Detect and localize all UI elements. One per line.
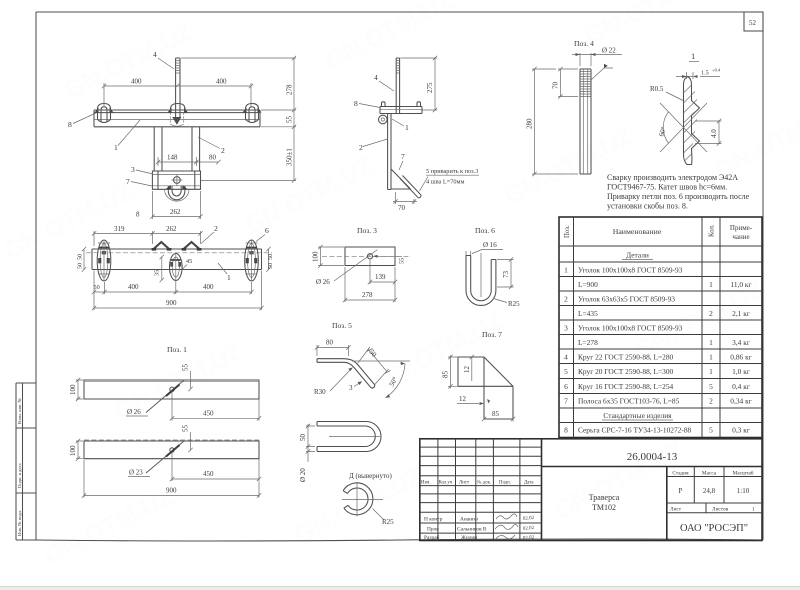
svg-text:5: 5 — [564, 367, 568, 376]
svg-text:Полоса 6х35 ГОСТ103-76, L=85: Полоса 6х35 ГОСТ103-76, L=85 — [578, 397, 680, 406]
svg-text:Уголок 63х63х5 ГОСТ 8509-93: Уголок 63х63х5 ГОСТ 8509-93 — [578, 295, 675, 304]
svg-text:Приме-: Приме- — [730, 224, 753, 232]
svg-text:+0.4: +0.4 — [712, 68, 721, 73]
svg-text:45: 45 — [186, 258, 192, 265]
svg-text:Ø 20: Ø 20 — [299, 468, 307, 482]
svg-text:262: 262 — [170, 208, 181, 216]
svg-text:1: 1 — [405, 123, 409, 132]
svg-text:Подп. и дата: Подп. и дата — [17, 463, 22, 488]
svg-text:Круг 20 ГОСТ 2590-88, L=300: Круг 20 ГОСТ 2590-88, L=300 — [578, 367, 674, 376]
svg-text:450: 450 — [203, 470, 214, 478]
svg-text:2: 2 — [709, 309, 713, 318]
svg-text:6: 6 — [265, 226, 269, 235]
svg-text:Поз. 6: Поз. 6 — [475, 226, 495, 235]
svg-text:Ø 26: Ø 26 — [316, 278, 330, 286]
svg-text:3: 3 — [349, 384, 353, 392]
svg-text:100: 100 — [69, 384, 77, 395]
svg-text:Инв. № подл.: Инв. № подл. — [17, 510, 22, 536]
svg-text:80: 80 — [209, 154, 217, 162]
svg-text:Лист: Лист — [670, 507, 682, 513]
svg-text:0,3 кг: 0,3 кг — [732, 426, 750, 435]
svg-text:12: 12 — [463, 366, 471, 374]
svg-text:50: 50 — [299, 434, 307, 442]
svg-text:3,4 кг: 3,4 кг — [732, 338, 750, 347]
svg-text:Траверса: Траверса — [589, 493, 620, 502]
svg-text:Ø 16: Ø 16 — [483, 241, 497, 249]
svg-text:2,1 кг: 2,1 кг — [732, 309, 750, 318]
svg-text:Подп.: Подп. — [499, 481, 511, 486]
svg-text:Масштаб: Масштаб — [733, 470, 754, 477]
svg-text:Поз. 3: Поз. 3 — [357, 226, 377, 235]
svg-text:55: 55 — [182, 425, 190, 433]
svg-text:02.02: 02.02 — [523, 516, 535, 522]
svg-text:3: 3 — [564, 324, 568, 333]
svg-text:Кол.: Кол. — [709, 224, 716, 237]
svg-text:2: 2 — [359, 143, 363, 152]
svg-text:02.02: 02.02 — [523, 526, 535, 532]
svg-text:GN.OTM.UZ: GN.OTM.UZ — [40, 482, 178, 571]
svg-text:8: 8 — [136, 211, 140, 219]
svg-text:Лист: Лист — [459, 481, 470, 486]
svg-text:4: 4 — [374, 73, 378, 82]
svg-text:1: 1 — [709, 280, 713, 289]
svg-text:0,86 кг: 0,86 кг — [730, 353, 751, 362]
svg-text:Пров: Пров — [427, 527, 439, 533]
svg-text:5: 5 — [709, 426, 713, 435]
svg-text:0,4 кг: 0,4 кг — [732, 382, 750, 391]
svg-text:1:10: 1:10 — [737, 487, 750, 495]
svg-text:8: 8 — [354, 99, 358, 108]
svg-text:1: 1 — [227, 273, 231, 282]
svg-text:4.0: 4.0 — [710, 129, 718, 138]
svg-text:2: 2 — [214, 224, 218, 233]
svg-text:50: 50 — [94, 284, 100, 291]
svg-text:55: 55 — [286, 116, 294, 124]
svg-text:35: 35 — [154, 270, 161, 276]
svg-text:Взам. инв. №: Взам. инв. № — [17, 397, 22, 424]
svg-text:Поз. 4: Поз. 4 — [574, 39, 594, 48]
svg-text:70: 70 — [398, 204, 406, 212]
svg-text:R25: R25 — [382, 518, 394, 526]
svg-text:GN.OTM.UZ: GN.OTM.UZ — [60, 17, 198, 106]
svg-text:Р: Р — [679, 487, 683, 495]
svg-text:400: 400 — [203, 283, 214, 291]
svg-text:26.0004-13: 26.0004-13 — [627, 451, 678, 463]
svg-text:50: 50 — [367, 348, 378, 359]
svg-text:400: 400 — [131, 78, 142, 86]
svg-text:1: 1 — [691, 51, 695, 61]
svg-text:№ док.: № док. — [477, 480, 491, 486]
svg-text:278: 278 — [286, 84, 294, 95]
svg-text:Сальников В: Сальников В — [457, 527, 487, 533]
svg-text:Изм.: Изм. — [421, 481, 431, 486]
svg-text:Масса: Масса — [702, 471, 717, 477]
svg-text:Круг 22 ГОСТ 2590-88, L=280: Круг 22 ГОСТ 2590-88, L=280 — [578, 353, 674, 362]
svg-text:4: 4 — [153, 50, 157, 59]
svg-text:GN.OTM.UZ: GN.OTM.UZ — [320, 0, 458, 75]
svg-text:1.5: 1.5 — [701, 70, 709, 77]
svg-text:7: 7 — [564, 397, 568, 406]
svg-text:278: 278 — [362, 291, 373, 299]
svg-text:55: 55 — [182, 364, 190, 372]
svg-text:8: 8 — [68, 120, 72, 129]
svg-text:Жилин: Жилин — [461, 535, 477, 541]
svg-text:5 приварить к поз.3: 5 приварить к поз.3 — [426, 168, 478, 175]
svg-text:1: 1 — [709, 353, 713, 362]
svg-text:262: 262 — [166, 225, 177, 233]
svg-text:Кол.уч: Кол.уч — [439, 481, 453, 486]
svg-text:Ø 22: Ø 22 — [602, 47, 616, 55]
svg-text:12: 12 — [459, 395, 467, 403]
svg-text:L=435: L=435 — [578, 309, 598, 318]
svg-text:Серьга СРС-7-16 ТУ34-13-10272-: Серьга СРС-7-16 ТУ34-13-10272-88 — [578, 426, 692, 435]
svg-text:2: 2 — [564, 295, 568, 304]
svg-text:Поз. 5: Поз. 5 — [332, 321, 352, 330]
svg-text:11,0 кг: 11,0 кг — [730, 280, 751, 289]
svg-text:50: 50 — [267, 254, 274, 260]
svg-text:GN.OTM.UZ: GN.OTM.UZ — [580, 0, 718, 50]
svg-text:ГОСТ9467-75. Катет швов hс=6мм: ГОСТ9467-75. Катет швов hс=6мм. — [607, 183, 727, 192]
svg-text:R0.5: R0.5 — [650, 85, 664, 93]
svg-text:Уголок 100х100х8 ГОСТ 8509-93: Уголок 100х100х8 ГОСТ 8509-93 — [578, 324, 683, 333]
svg-text:чание: чание — [732, 233, 749, 241]
svg-text:1: 1 — [564, 266, 568, 275]
svg-text:0,34 кг: 0,34 кг — [730, 397, 751, 406]
svg-text:1: 1 — [114, 143, 118, 152]
svg-text:Разраб: Разраб — [424, 534, 440, 541]
svg-text:400: 400 — [128, 283, 139, 291]
svg-text:Наименование: Наименование — [613, 227, 662, 236]
svg-text:80: 80 — [326, 339, 334, 347]
svg-text:2: 2 — [221, 146, 225, 155]
svg-text:ОАО "РОСЭП": ОАО "РОСЭП" — [680, 523, 748, 534]
svg-text:Стадия: Стадия — [672, 471, 689, 477]
svg-text:50: 50 — [77, 254, 84, 260]
svg-text:73: 73 — [502, 271, 510, 279]
svg-text:Сварку производить электродом: Сварку производить электродом Э42А — [607, 173, 738, 182]
svg-text:Д (вывернуто): Д (вывернуто) — [349, 472, 392, 480]
svg-text:100: 100 — [312, 251, 320, 262]
svg-text:7: 7 — [126, 177, 130, 186]
svg-text:Поз. 1: Поз. 1 — [167, 345, 187, 354]
svg-text:R30: R30 — [314, 388, 326, 396]
svg-text:100: 100 — [69, 445, 77, 456]
svg-text:350±1: 350±1 — [286, 148, 294, 166]
svg-text:900: 900 — [166, 487, 177, 495]
svg-text:Ø 23: Ø 23 — [129, 469, 143, 477]
svg-text:85: 85 — [492, 410, 500, 418]
svg-text:4 шва L=70мм: 4 шва L=70мм — [426, 179, 465, 186]
svg-text:L=278: L=278 — [578, 338, 598, 347]
svg-text:148: 148 — [167, 154, 178, 162]
svg-text:52: 52 — [749, 19, 757, 27]
svg-text:50: 50 — [77, 263, 84, 269]
svg-text:50: 50 — [267, 263, 274, 269]
svg-text:319: 319 — [114, 225, 125, 233]
svg-text:275: 275 — [426, 82, 434, 93]
svg-text:70: 70 — [552, 82, 560, 90]
svg-text:Стандартные изделия: Стандартные изделия — [603, 411, 672, 420]
svg-text:Уголок 100х100х8 ГОСТ 8509-93: Уголок 100х100х8 ГОСТ 8509-93 — [578, 266, 683, 275]
svg-text:Поз.: Поз. — [564, 225, 571, 238]
svg-text:2: 2 — [709, 397, 713, 406]
svg-text:1: 1 — [752, 507, 755, 513]
svg-text:400: 400 — [216, 78, 227, 86]
svg-text:1,0 кг: 1,0 кг — [732, 367, 750, 376]
svg-text:Н контр: Н контр — [424, 517, 443, 523]
svg-text:Листов: Листов — [712, 507, 729, 513]
svg-text:60°: 60° — [657, 126, 668, 138]
svg-text:Поз. 7: Поз. 7 — [482, 330, 502, 339]
svg-text:Приварку петли поз. 6 производ: Приварку петли поз. 6 производить после — [607, 192, 750, 201]
svg-text:5: 5 — [709, 382, 713, 391]
svg-text:3: 3 — [131, 165, 135, 174]
svg-text:ТМ102: ТМ102 — [592, 503, 616, 512]
svg-text:установки скобы поз. 8.: установки скобы поз. 8. — [607, 202, 688, 211]
svg-text:Круг 16 ГОСТ 2590-88, L=254: Круг 16 ГОСТ 2590-88, L=254 — [578, 382, 674, 391]
svg-text:R25: R25 — [508, 300, 520, 308]
svg-text:4: 4 — [564, 353, 568, 362]
svg-text:Ø 26: Ø 26 — [127, 408, 141, 416]
svg-text:1: 1 — [709, 338, 713, 347]
svg-text:L=900: L=900 — [578, 280, 598, 289]
svg-text:1: 1 — [709, 367, 713, 376]
svg-text:7: 7 — [401, 152, 405, 161]
svg-text:55: 55 — [399, 258, 406, 264]
svg-text:8: 8 — [564, 426, 568, 435]
svg-text:GN.OTM.UZ: GN.OTM.UZ — [0, 177, 138, 266]
svg-text:6: 6 — [564, 382, 568, 391]
svg-text:24,8: 24,8 — [703, 487, 716, 495]
svg-text:Детали: Детали — [626, 251, 649, 260]
svg-text:280: 280 — [526, 118, 534, 129]
svg-text:85: 85 — [442, 371, 450, 379]
svg-text:450: 450 — [203, 410, 214, 418]
svg-text:139: 139 — [375, 273, 386, 281]
svg-text:Ананин: Ананин — [460, 517, 478, 523]
svg-text:Дата: Дата — [524, 481, 534, 486]
svg-text:900: 900 — [166, 299, 177, 307]
